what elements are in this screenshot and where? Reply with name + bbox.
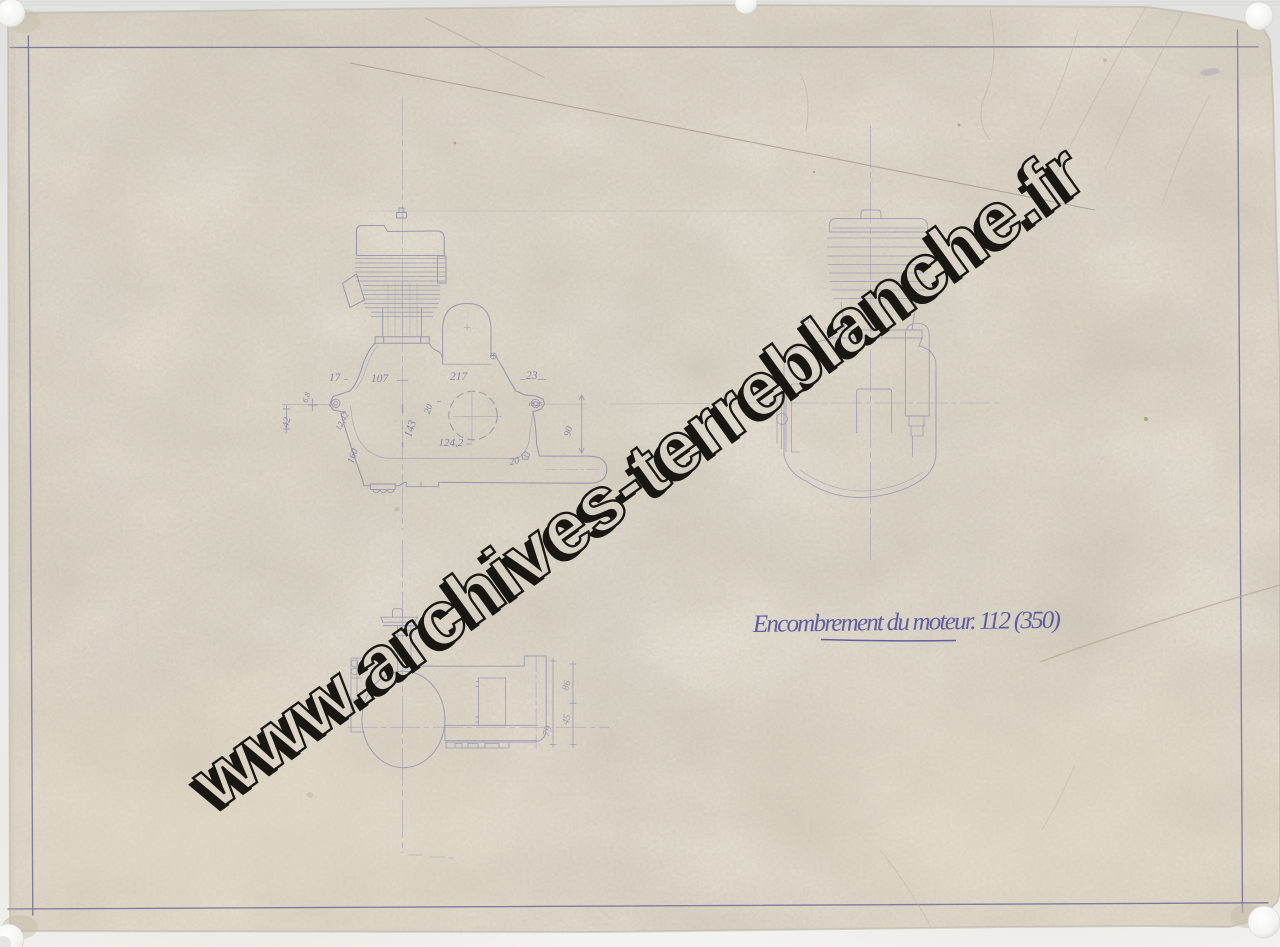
svg-text:Encombrement du moteur. 112 (3: Encombrement du moteur. 112 (350): [752, 607, 1061, 638]
svg-text:23: 23: [526, 370, 538, 382]
svg-text:17: 17: [329, 372, 342, 384]
svg-text:217: 217: [450, 371, 469, 383]
svg-text:107: 107: [371, 373, 390, 385]
svg-text:18,25: 18,25: [528, 401, 543, 408]
svg-text:124,2: 124,2: [439, 437, 464, 449]
